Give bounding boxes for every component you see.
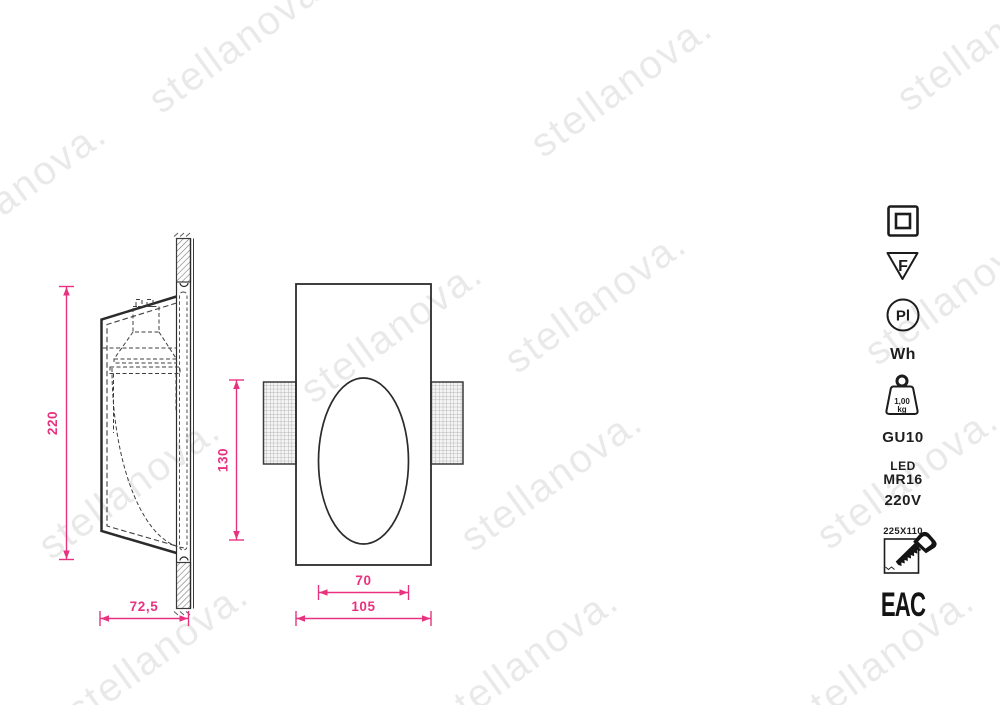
flange-right [431, 382, 463, 464]
lamp-rim-2 [110, 367, 180, 374]
lamp-type-line2: MR16 [843, 471, 963, 487]
pl-mark-label: Pl [896, 308, 910, 325]
eac-mark: EAC [881, 586, 926, 624]
dim-side-depth-label: 72,5 [130, 599, 159, 614]
voltage-label: 220V [843, 492, 963, 509]
flange-left [264, 382, 297, 464]
wall-section-top [177, 239, 191, 283]
dim-130: 130 [216, 380, 245, 540]
clip-top [180, 283, 188, 287]
finish-label: Wh [843, 346, 963, 364]
weight-unit-label: kg [897, 405, 906, 414]
spec-panel-icons: F Pl 1,00 kg [881, 207, 939, 625]
wall-break-bottom [174, 612, 190, 616]
product-datasheet: stellanova.stellanova.stellanova.stellan… [0, 0, 1000, 705]
dim-width-label: 105 [351, 599, 375, 614]
dim-220: 220 [45, 287, 74, 560]
lamp-base [133, 307, 159, 333]
wall-break-top [174, 233, 190, 237]
wall-section-bottom [177, 563, 191, 609]
lamp-rim-1 [114, 359, 177, 363]
cutout-size-label: 225X110 [843, 526, 963, 537]
lamp-hidden-lines [103, 300, 187, 549]
housing-inner-dashed [107, 303, 177, 546]
side-section-view: 220 72,5 [45, 233, 194, 626]
dim-70: 70 [319, 573, 409, 600]
class-ii-icon [889, 207, 918, 236]
plate-recess-dashed [180, 292, 188, 550]
dim-105: 105 [296, 599, 431, 626]
socket-label: GU10 [843, 429, 963, 446]
lamp-cone [114, 332, 177, 359]
dim-side-height-label: 220 [45, 411, 60, 435]
front-plate [296, 284, 431, 565]
weight-icon: 1,00 kg [886, 376, 917, 414]
pl-circle-icon: Pl [888, 300, 919, 331]
lamp-pin-left [136, 300, 142, 307]
housing-outline [102, 297, 177, 554]
dim-opening-width-label: 70 [355, 573, 371, 588]
dim-opening-height-label: 130 [216, 448, 231, 472]
clip-bottom [180, 557, 188, 560]
f-triangle-icon: F [888, 253, 918, 279]
f-mark-label: F [898, 258, 908, 275]
front-view: 130 70 105 [216, 284, 464, 626]
